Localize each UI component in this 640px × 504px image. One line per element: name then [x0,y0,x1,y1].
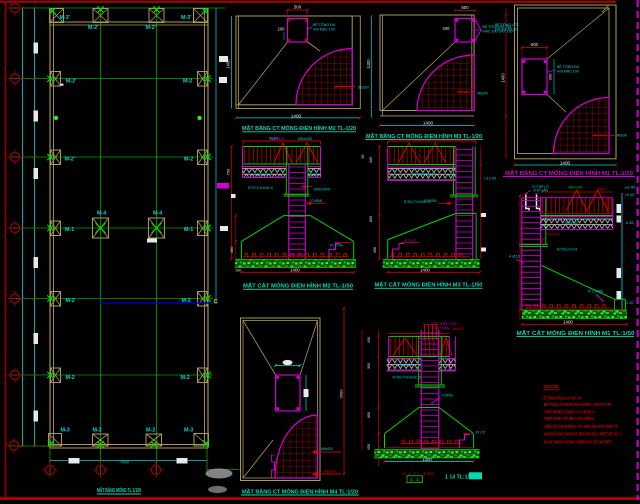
svg-text:M-3: M-3 [184,427,193,433]
svg-text:MẶT BẰNG CT MÓNG ĐIỂN HÌNH M4: MẶT BẰNG CT MÓNG ĐIỂN HÌNH M4 TL:1/20 [242,487,358,495]
svg-text:600: 600 [369,216,373,222]
svg-text:MẶT CẮT MÓNG ĐIỂN HÌNH M1 TL: MẶT CẮT MÓNG ĐIỂN HÌNH M1 TL:1/50 [517,329,635,337]
svg-text:1400: 1400 [501,73,506,83]
svg-text:1400: 1400 [291,113,302,118]
svg-text:1400: 1400 [560,160,571,165]
svg-text:600: 600 [531,42,539,47]
svg-text:M-4: M-4 [153,211,162,217]
svg-text:CỔ MÓNG: CỔ MÓNG [424,198,437,203]
svg-text:MẶT BẰNG CT MÓNG ĐIỂN HÌNH M1: MẶT BẰNG CT MÓNG ĐIỂN HÌNH M1 TL:1/20 [505,169,633,177]
svg-text:M-2': M-2' [146,25,157,31]
svg-text:450: 450 [367,444,371,450]
svg-text:200: 200 [278,27,286,32]
svg-text:+0.00: +0.00 [625,193,635,197]
svg-text:BÊ TÔNG LÓT Đ.4x6: BÊ TÔNG LÓT Đ.4x6 [557,247,577,252]
svg-text:450: 450 [229,246,234,253]
svg-text:-0.45: -0.45 [625,221,634,225]
svg-text:ĐÁ 4x6: ĐÁ 4x6 [308,173,319,177]
svg-text:- BÊ TÔNG MÓNG ĐÁ 1x2 MÁC 250.: - BÊ TÔNG MÓNG ĐÁ 1x2 MÁC 250. [542,396,582,401]
svg-text:1400: 1400 [290,268,300,273]
svg-text:- CHIỀU SÂU CHÔN MÓNG TÙY THEO: - CHIỀU SÂU CHÔN MÓNG TÙY THEO ĐỊA CHẤT … [542,424,618,429]
svg-text:M-1: M-1 [184,227,193,233]
svg-text:50: 50 [361,155,365,159]
svg-text:200: 200 [443,26,451,31]
svg-text:450: 450 [373,247,377,253]
svg-text:M-2: M-2 [93,427,102,433]
svg-text:-1.40: -1.40 [625,301,634,305]
svg-text:4x6 MÁC 100: 4x6 MÁC 100 [313,28,335,32]
svg-text:7500: 7500 [120,460,130,465]
svg-text:BT LÓT M50: BT LÓT M50 [330,243,343,248]
svg-text:M-1: M-1 [65,227,74,233]
svg-text:BÊ TÔNG ĐÁ: BÊ TÔNG ĐÁ [313,22,336,27]
svg-text:M-2: M-2 [66,298,75,304]
svg-text:1400: 1400 [366,59,371,69]
svg-text:±0.00: ±0.00 [625,186,636,190]
svg-text:GIẰNG MÓNG: GIẰNG MÓNG [314,187,331,192]
svg-text:M-2': M-2' [66,78,77,84]
svg-text:M-2': M-2' [65,157,76,163]
svg-text:CỔ MÓNG: CỔ MÓNG [310,198,323,203]
svg-text:M-4: M-4 [97,211,106,217]
svg-text:GIẰNG MÓNG: GIẰNG MÓNG [547,232,560,237]
svg-text:3600: 3600 [339,389,344,399]
svg-text:Ø6a150: Ø6a150 [298,137,312,141]
svg-text:CỐT THÉP CỘT: CỐT THÉP CỘT [431,321,458,326]
svg-text:MẶT CẮT MÓNG ĐIỂN HÌNH M2 TL-: MẶT CẮT MÓNG ĐIỂN HÌNH M2 TL-1/50 [243,282,353,290]
svg-text:3Ø16: 3Ø16 [271,137,284,141]
svg-text:CỔ MÓNG: CỔ MÓNG [441,393,453,398]
svg-text:ĐẦM CHẶT: ĐẦM CHẶT [569,186,584,190]
svg-text:300: 300 [367,363,371,369]
svg-text:500: 500 [294,5,302,10]
svg-text:GHI CHÚ:: GHI CHÚ: [544,383,560,389]
svg-text:M-2': M-2' [88,25,99,31]
svg-text:Ø6a200: Ø6a200 [452,327,464,331]
svg-text:Ø6a200: Ø6a200 [321,447,333,451]
svg-text:1400: 1400 [563,320,573,325]
svg-text:M-2: M-2 [66,375,75,381]
svg-text:600: 600 [367,412,371,418]
svg-text:1,5-2.0M: 1,5-2.0M [484,177,496,181]
svg-text:Ø6a200: Ø6a200 [617,133,627,137]
svg-text:1-1: 1-1 [410,477,421,482]
svg-text:- KÍCH THƯỚC KHÁC XEM BẢN VẼ C: - KÍCH THƯỚC KHÁC XEM BẢN VẼ CHI TIẾT. [542,439,612,444]
svg-text:1400: 1400 [423,120,434,125]
svg-text:1 14 TL:1/: 1 14 TL:1/ [445,474,470,480]
svg-text:BÊ TÔNG LÓT ĐÁ 4x6 MÁC 100: BÊ TÔNG LÓT ĐÁ 4x6 MÁC 100 [248,185,273,190]
svg-text:4 Ø16: 4 Ø16 [509,255,520,259]
svg-text:M-2: M-2 [181,375,190,381]
svg-text:- KHI THI CÔNG GẶP ĐẤT YẾU PHẢ: - KHI THI CÔNG GẶP ĐẤT YẾU PHẢI BÁO THIẾ… [542,432,623,437]
svg-text:M-2: M-2 [184,157,193,163]
svg-text:400: 400 [367,337,371,343]
svg-text:M-2: M-2 [183,78,192,84]
svg-text:MẶT BẰNG MÓNG TL 1/100: MẶT BẰNG MÓNG TL 1/100 [97,486,141,494]
svg-text:CHỜ SẴN: CHỜ SẴN [433,326,450,331]
svg-text:ĐÁ 4x6 MÁC 100: ĐÁ 4x6 MÁC 100 [397,363,414,367]
svg-text:4x6 MÁC 100: 4x6 MÁC 100 [557,70,579,74]
svg-text:M-3': M-3' [60,15,71,21]
svg-text:- THÉP CHỜ CỘT NEO VÀO MÓNG.: - THÉP CHỜ CỘT NEO VÀO MÓNG. [542,416,595,421]
svg-text:750: 750 [226,168,231,175]
svg-text:MẶT BẰNG CT MÓNG ĐIỂN HÌNH M3: MẶT BẰNG CT MÓNG ĐIỂN HÌNH M3 TL-1/20 [366,132,482,140]
svg-text:Ø6a200: Ø6a200 [324,470,336,474]
svg-text:BT LÓT M50: BT LÓT M50 [588,289,603,294]
svg-text:BT LÓT: BT LÓT [476,430,486,435]
svg-text:MẶT BẰNG CT MÓNG ĐIỂN HÌNH M2: MẶT BẰNG CT MÓNG ĐIỂN HÌNH M2 TL-1/20 [242,124,356,132]
svg-text:100: 100 [235,268,241,272]
svg-text:500: 500 [461,5,469,10]
svg-text:BÊ TÔNG LÓT ĐÁ 4x6 MÁC 100: BÊ TÔNG LÓT ĐÁ 4x6 MÁC 100 [393,375,421,380]
svg-text:M-2: M-2 [146,427,155,433]
svg-text:- THÉP MÓNG CB240-T VÀ CB300-V: - THÉP MÓNG CB240-T VÀ CB300-V. [542,410,595,415]
svg-text:Ø6a200: Ø6a200 [358,85,370,90]
svg-text:900: 900 [548,73,553,80]
svg-text:BÊ TÔNG LÓT: BÊ TÔNG LÓT [495,22,520,27]
svg-text:M-3': M-3' [181,15,192,21]
svg-text:ĐÁ 4x6 M100: ĐÁ 4x6 M100 [495,28,517,32]
svg-text:Ø6a200: Ø6a200 [477,92,488,96]
svg-text:1400: 1400 [420,268,430,273]
svg-text:BÊ TÔNG ĐÁ: BÊ TÔNG ĐÁ [557,64,580,69]
svg-text:BT LÓT: BT LÓT [405,238,416,243]
svg-text:1400: 1400 [422,457,432,462]
svg-text:ĐÁ 4x6 M100: ĐÁ 4x6 M100 [565,221,578,225]
svg-text:MẶT CẮT MÓNG ĐIỂN HÌNH M3 TL-: MẶT CẮT MÓNG ĐIỂN HÌNH M3 TL-1/50 [375,281,483,289]
svg-text:ĐÁ 4x6 MÁC 100: ĐÁ 4x6 MÁC 100 [255,173,267,177]
svg-text:1400: 1400 [226,59,231,69]
svg-text:- BÊ TÔNG LÓT MÓNG ĐÁ 4x6 MÁC: - BÊ TÔNG LÓT MÓNG ĐÁ 4x6 MÁC 100 DÀY 10… [542,402,612,407]
svg-text:Ø6a200: Ø6a200 [598,187,607,191]
svg-text:ĐÁ 4x6 MÁC 100: ĐÁ 4x6 MÁC 100 [412,173,435,177]
svg-text:M-3: M-3 [61,427,70,433]
svg-text:400: 400 [369,157,373,163]
